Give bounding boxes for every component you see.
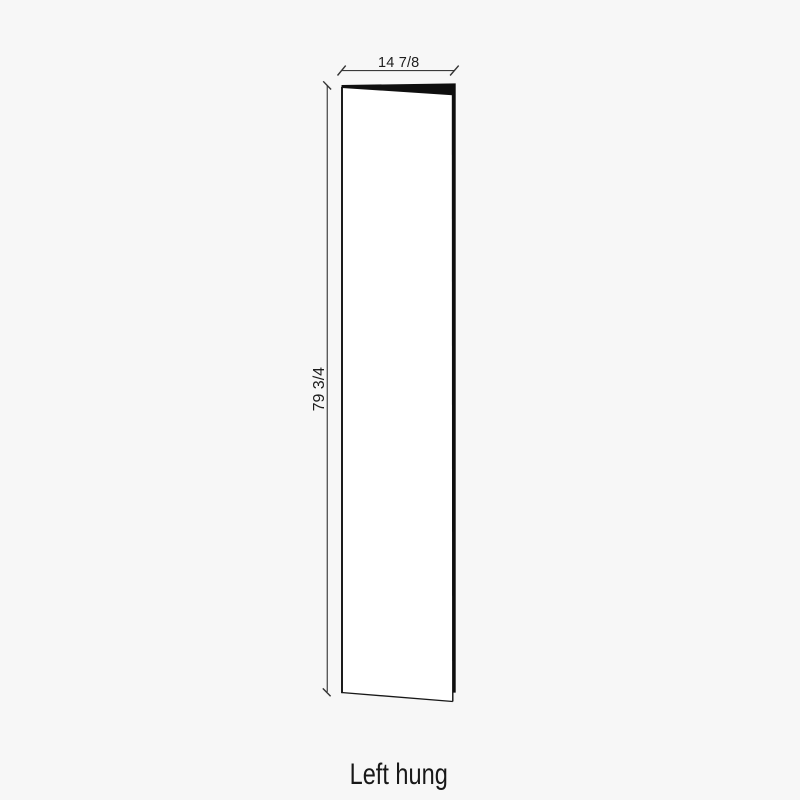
svg-text:14 7/8: 14 7/8 [378,55,420,71]
svg-text:79 3/4: 79 3/4 [311,367,328,412]
svg-text:Left hung: Left hung [350,757,448,790]
